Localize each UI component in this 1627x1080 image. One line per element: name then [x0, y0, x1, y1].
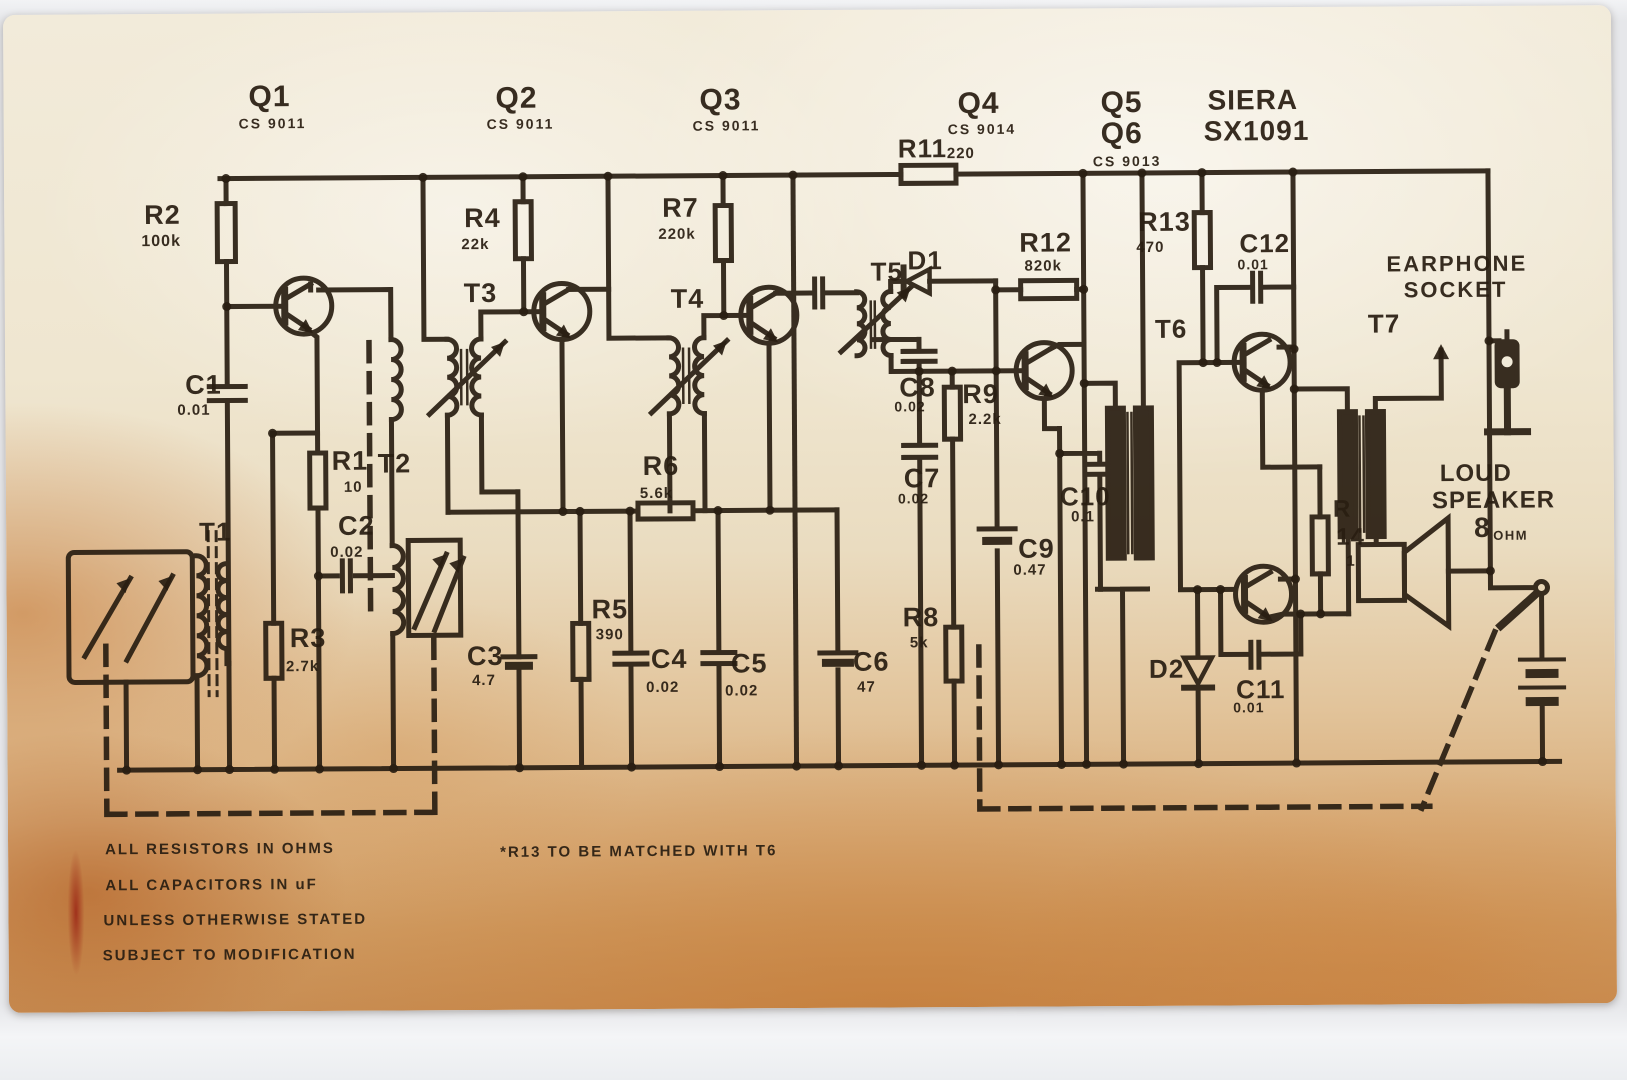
text-note-1: ALL RESISTORS IN OHMS: [105, 841, 335, 857]
text-c6-value: 47: [857, 680, 876, 695]
text-t3: T3: [464, 280, 498, 307]
text-note-r13: *R13 TO BE MATCHED WITH T6: [500, 843, 777, 860]
text-brand-model: SX1091: [1204, 117, 1310, 146]
text-r5: R5: [592, 596, 629, 623]
text-c12-value: 0.01: [1237, 257, 1268, 271]
text-r14-value: 1: [1346, 554, 1355, 569]
text-speaker-impedance: 8: [1474, 514, 1491, 542]
schematic-sheet: Q1CS 9011Q2CS 9011Q3CS 9011Q4CS 9014Q5Q6…: [3, 5, 1617, 1013]
text-q6: Q6: [1101, 119, 1143, 149]
text-t7: T7: [1368, 310, 1401, 336]
text-c1-value: 0.01: [177, 403, 210, 418]
text-note-2: ALL CAPACITORS IN uF: [105, 877, 318, 893]
text-brand-name: SIERA: [1207, 86, 1298, 115]
text-t5: T5: [870, 258, 903, 284]
text-r1-value: 10: [344, 480, 363, 495]
text-note-4: SUBJECT TO MODIFICATION: [103, 947, 357, 964]
text-r9-value: 2.2k: [968, 412, 1001, 427]
text-r4-value: 22k: [461, 237, 489, 252]
text-t6: T6: [1155, 316, 1188, 342]
text-d2: D2: [1149, 656, 1184, 682]
scanned-schematic: Q1CS 9011Q2CS 9011Q3CS 9011Q4CS 9014Q5Q6…: [0, 0, 1627, 1080]
text-r4: R4: [464, 205, 501, 232]
text-c7-value: 0.02: [898, 491, 929, 505]
text-loudspeaker-line2: SPEAKER: [1432, 488, 1555, 513]
text-r14-num: 14: [1336, 526, 1365, 550]
text-earphone-line2: SOCKET: [1404, 279, 1508, 302]
text-r9: R9: [962, 381, 999, 408]
text-speaker-impedance-unit: OHM: [1493, 529, 1528, 542]
text-c1: C1: [185, 372, 222, 399]
text-t4: T4: [671, 286, 705, 313]
text-r6-value: 5.6k: [640, 486, 673, 501]
text-r8: R8: [903, 604, 940, 631]
text-t1: T1: [199, 519, 232, 545]
text-r13: R13: [1138, 209, 1191, 236]
text-t2: T2: [378, 450, 412, 477]
text-r8-value: 5k: [910, 635, 929, 650]
text-r12: R12: [1019, 229, 1072, 256]
text-c3-value: 4.7: [472, 673, 496, 688]
text-q3: Q3: [699, 85, 741, 115]
text-c11-value: 0.01: [1233, 700, 1264, 714]
text-r11-value: 220: [947, 146, 975, 161]
paper-sheet: Q1CS 9011Q2CS 9011Q3CS 9011Q4CS 9014Q5Q6…: [3, 5, 1617, 1013]
text-r6: R6: [643, 453, 680, 480]
text-r11: R11: [898, 135, 947, 161]
text-q1: Q1: [248, 82, 290, 112]
text-c6: C6: [853, 649, 890, 676]
text-c4: C4: [651, 646, 688, 673]
text-r14-ref: R: [1333, 498, 1351, 522]
text-q2: Q2: [495, 84, 537, 114]
text-note-3: UNLESS OTHERWISE STATED: [103, 912, 367, 929]
text-c7: C7: [904, 465, 941, 492]
text-c9-value: 0.47: [1013, 563, 1046, 578]
text-r5-value: 390: [596, 627, 624, 642]
text-c2-value: 0.02: [330, 545, 363, 560]
text-loudspeaker-line1: LOUD: [1440, 462, 1512, 486]
text-r2-value: 100k: [141, 234, 181, 250]
text-r7: R7: [662, 195, 699, 222]
text-c8-value: 0.02: [894, 399, 925, 413]
text-c5: C5: [731, 650, 768, 677]
text-r3: R3: [290, 625, 327, 652]
text-c9: C9: [1018, 536, 1055, 563]
text-c10-value: 0.1: [1071, 509, 1095, 524]
text-q4: Q4: [957, 89, 999, 119]
text-r2: R2: [144, 202, 181, 229]
text-q4-part: CS 9014: [948, 122, 1017, 136]
text-c2: C2: [338, 513, 375, 540]
text-q1-part: CS 9011: [239, 116, 307, 130]
text-q3-part: CS 9011: [693, 118, 761, 132]
text-c10: C10: [1060, 483, 1111, 509]
text-r7-value: 220k: [658, 227, 695, 242]
labels-layer: Q1CS 9011Q2CS 9011Q3CS 9011Q4CS 9014Q5Q6…: [3, 5, 1617, 1013]
text-d1: D1: [907, 247, 942, 273]
text-q5: Q5: [1100, 88, 1142, 118]
text-r3-value: 2.7k: [286, 659, 319, 674]
text-r1: R1: [332, 448, 369, 475]
text-r13-value: 470: [1136, 240, 1164, 255]
text-earphone-line1: EARPHONE: [1386, 253, 1527, 276]
text-c3: C3: [467, 643, 504, 670]
text-c5-value: 0.02: [725, 683, 758, 698]
text-q2-part: CS 9011: [487, 117, 555, 131]
text-r12-value: 820k: [1024, 258, 1061, 273]
text-c4-value: 0.02: [646, 680, 679, 695]
text-c12: C12: [1239, 230, 1290, 256]
text-q5q6-part: CS 9013: [1093, 154, 1162, 168]
